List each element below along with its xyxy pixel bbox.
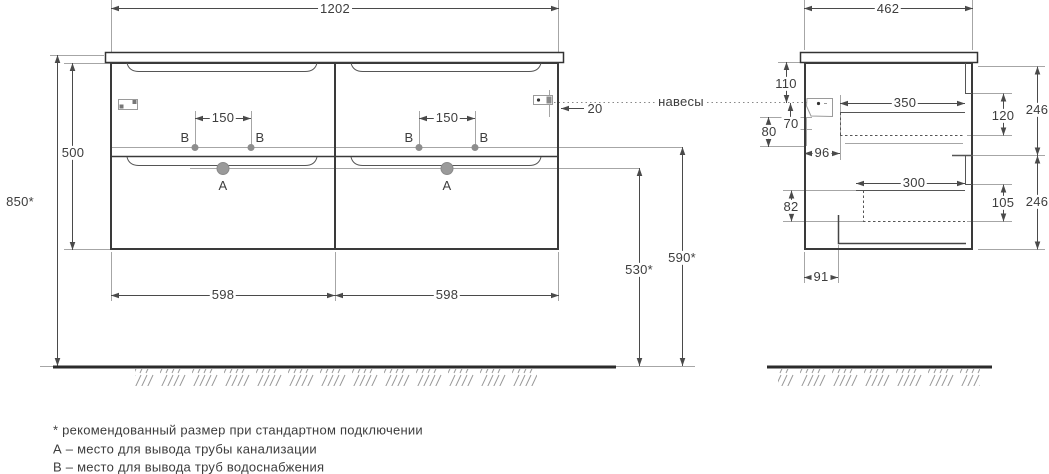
- drawing-linework: [0, 0, 1049, 474]
- dim-total-height: 850*: [6, 195, 34, 209]
- dim-drain-height: 530*: [623, 263, 655, 277]
- vanity-technical-drawing: 1202 500 850* 150 150 20 598 598 530* 59…: [0, 0, 1049, 474]
- dim-half-width-right: 598: [434, 288, 460, 302]
- dim-96: 96: [813, 146, 832, 160]
- dim-cabinet-height: 500: [60, 146, 86, 160]
- dim-80: 80: [760, 125, 779, 139]
- side-drawer-fronts: [952, 63, 973, 185]
- dim-246-lower: 246: [1024, 195, 1049, 209]
- floor-hatching-front: [135, 369, 537, 386]
- dim-supply-spacing-left: 150: [210, 111, 236, 125]
- wall-bracket-icon-side: [807, 99, 833, 117]
- dim-246-upper: 246: [1024, 103, 1049, 117]
- front-countertop: [106, 53, 564, 63]
- side-lower-drawer-box: [856, 191, 965, 222]
- dim-70: 70: [782, 117, 801, 131]
- wall-bracket-icon-right: [534, 96, 553, 105]
- supply-point-label: В: [181, 131, 190, 145]
- dim-supply-height: 590*: [666, 251, 698, 265]
- supply-point-label: В: [256, 131, 265, 145]
- side-countertop: [801, 53, 978, 63]
- hangers-label: навесы: [656, 95, 706, 109]
- dim-supply-spacing-right: 150: [434, 111, 460, 125]
- footnote-supply: В – место для вывода труб водоснабжения: [53, 460, 324, 474]
- drain-point-label: А: [219, 179, 228, 193]
- wall-bracket-icon-left: [119, 100, 138, 110]
- dim-overall-width: 1202: [318, 2, 352, 16]
- footnote-recommended-size: * рекомендованный размер при стандартном…: [53, 423, 423, 438]
- footnote-drain: А – место для вывода трубы канализации: [53, 442, 317, 457]
- floor-hatching-side: [778, 369, 980, 386]
- dim-82: 82: [782, 200, 801, 214]
- floor: [53, 367, 992, 386]
- dim-depth: 462: [875, 2, 901, 16]
- side-pipe-clearance-outline: [839, 215, 967, 244]
- dim-half-width-left: 598: [210, 288, 236, 302]
- dim-350: 350: [892, 96, 918, 110]
- supply-point-label: В: [405, 131, 414, 145]
- dim-hanger-offset: 20: [588, 102, 603, 116]
- front-view: [106, 53, 564, 250]
- side-upper-drawer-box: [840, 113, 965, 136]
- supply-point-label: В: [480, 131, 489, 145]
- dim-300: 300: [901, 176, 927, 190]
- dim-120: 120: [990, 109, 1016, 123]
- drain-point-label: А: [443, 179, 452, 193]
- dim-110: 110: [773, 77, 798, 91]
- dim-105: 105: [990, 196, 1016, 210]
- dim-91: 91: [812, 270, 831, 284]
